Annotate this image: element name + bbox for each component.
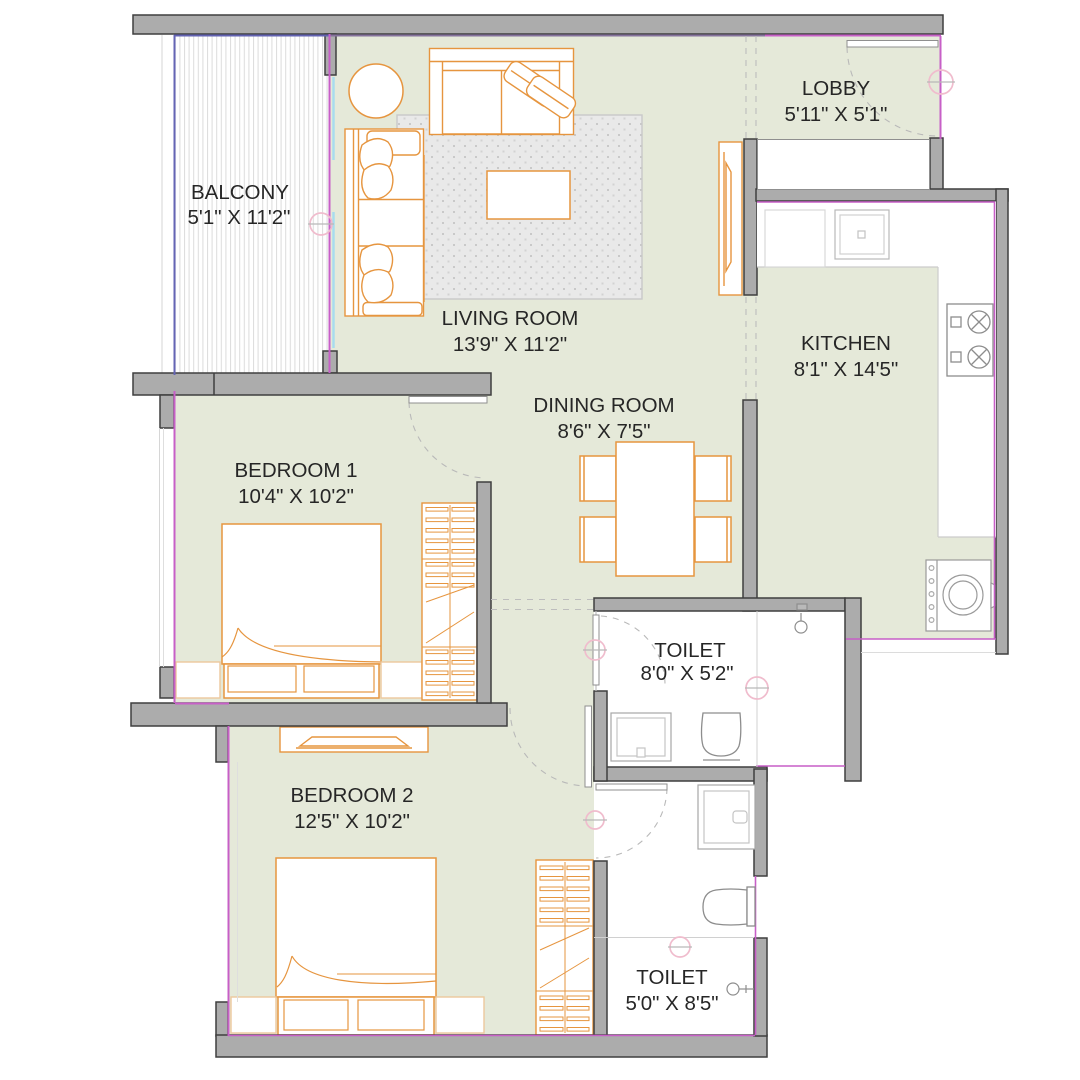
svg-text:10'4" X 10'2": 10'4" X 10'2"	[238, 485, 354, 508]
svg-text:LIVING ROOM: LIVING ROOM	[442, 307, 579, 330]
svg-text:DINING ROOM: DINING ROOM	[533, 394, 674, 417]
svg-text:BEDROOM 2: BEDROOM 2	[290, 784, 413, 807]
svg-text:BEDROOM 1: BEDROOM 1	[234, 459, 357, 482]
svg-text:5'0" X 8'5": 5'0" X 8'5"	[625, 992, 718, 1015]
svg-text:8'0" X 5'2": 8'0" X 5'2"	[640, 662, 733, 685]
svg-text:TOILET: TOILET	[654, 639, 726, 662]
svg-text:KITCHEN: KITCHEN	[801, 332, 891, 355]
svg-text:BALCONY: BALCONY	[191, 181, 289, 204]
svg-text:13'9" X 11'2": 13'9" X 11'2"	[453, 333, 567, 356]
svg-text:LOBBY: LOBBY	[802, 77, 871, 100]
svg-text:5'1" X 11'2": 5'1" X 11'2"	[188, 206, 291, 229]
svg-text:5'11" X 5'1": 5'11" X 5'1"	[785, 103, 888, 126]
svg-text:12'5" X 10'2": 12'5" X 10'2"	[294, 810, 410, 833]
svg-text:TOILET: TOILET	[636, 966, 708, 989]
svg-text:8'1" X 14'5": 8'1" X 14'5"	[794, 358, 898, 381]
svg-text:8'6" X 7'5": 8'6" X 7'5"	[557, 420, 650, 443]
